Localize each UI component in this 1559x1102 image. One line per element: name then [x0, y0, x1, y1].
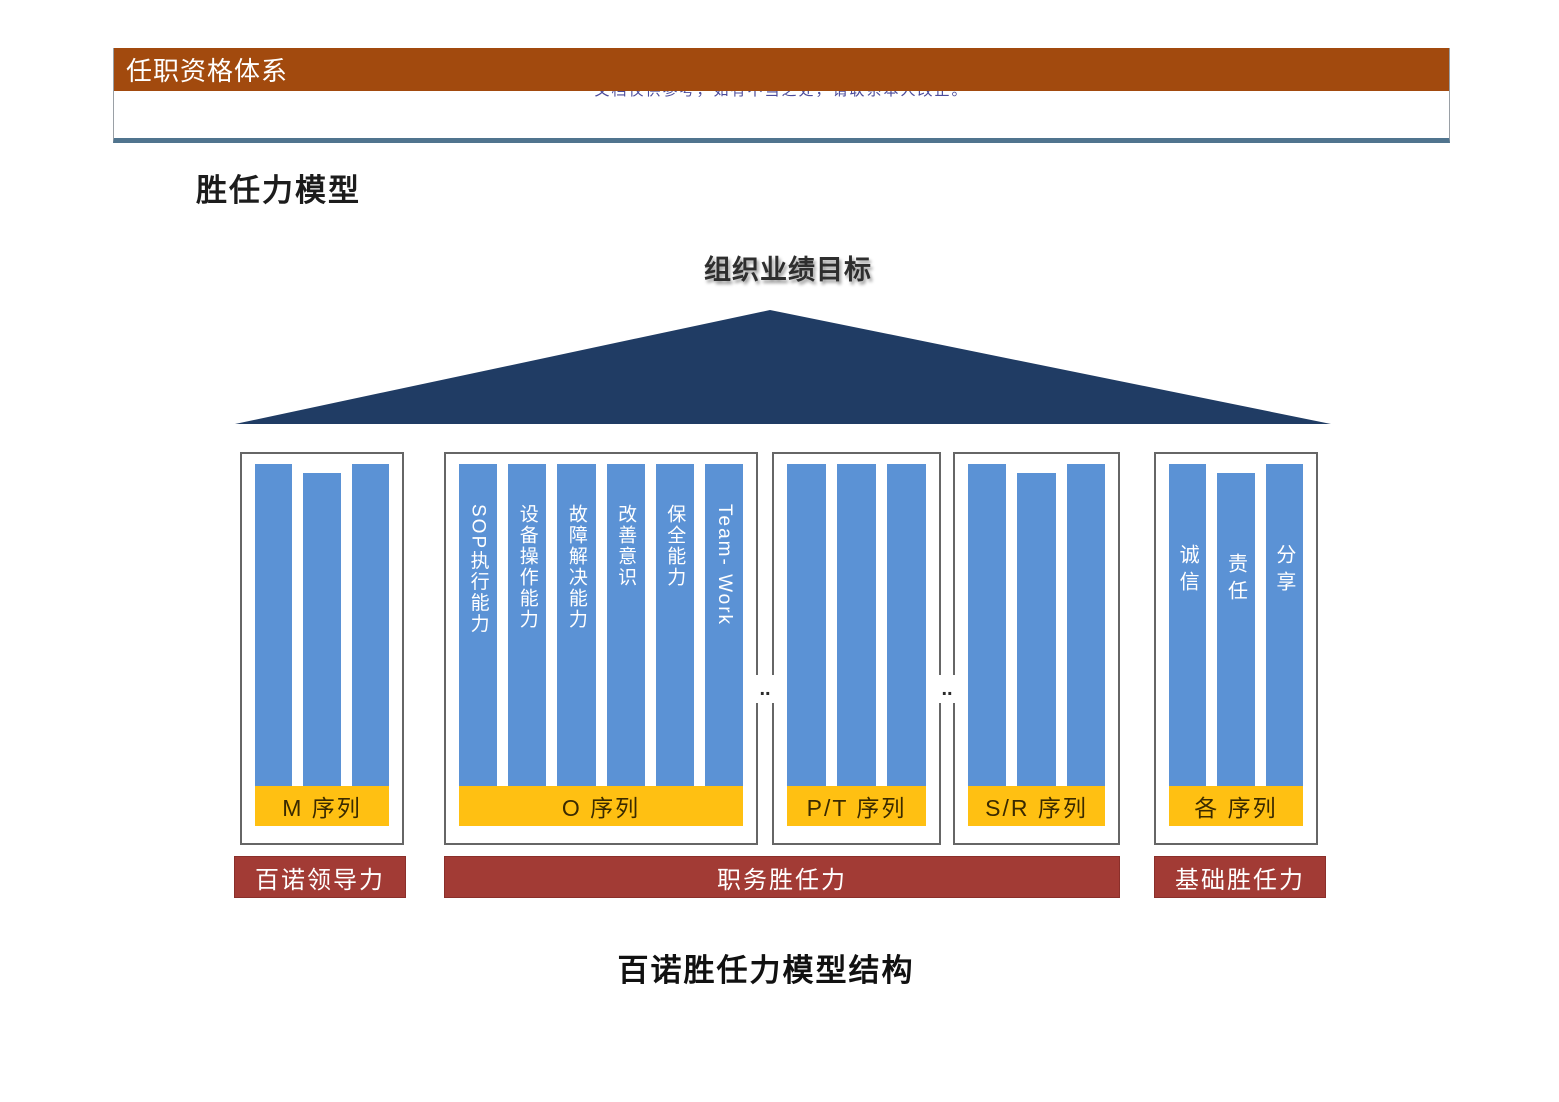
pillar-column — [787, 464, 826, 786]
column-label: Team- Work — [713, 464, 735, 786]
pillar-columns — [255, 464, 389, 786]
series-banner-m: M 序列 — [255, 786, 389, 826]
pillar-column — [968, 464, 1006, 786]
document-header: 任职资格体系 文档仅供参考，如有不当之处，请联系本人改正。 — [113, 48, 1450, 143]
series-banner-o: O 序列 — [459, 786, 743, 826]
pillar-column: 保全能力 — [656, 464, 694, 786]
pillar-column: 改善意识 — [607, 464, 645, 786]
pillar-column — [837, 464, 876, 786]
roof-triangle — [233, 306, 1333, 426]
pillar-column: 设备操作能力 — [508, 464, 546, 786]
column-label: 保全能力 — [661, 464, 688, 786]
pillar-columns: SOP执行能力设备操作能力故障解决能力改善意识保全能力Team- Work — [459, 464, 743, 786]
pillar-group-s-r: S/R 序列 — [953, 452, 1120, 845]
pillar-columns — [787, 464, 926, 786]
pillar-columns — [968, 464, 1105, 786]
pillar-column: 分享 — [1266, 464, 1303, 786]
pillar-columns: 诚信责任分享 — [1169, 464, 1303, 786]
pillar-column: 责任 — [1217, 473, 1254, 786]
pillar-group-m: M 序列 — [240, 452, 404, 845]
document-page: 任职资格体系 文档仅供参考，如有不当之处，请联系本人改正。 胜任力模型 组织业绩… — [0, 0, 1559, 1102]
pillar-column: Team- Work — [705, 464, 743, 786]
pillar-column — [887, 464, 926, 786]
competency-banner-leadership: 百诺领导力 — [234, 856, 406, 898]
competency-banner-basic: 基础胜任力 — [1154, 856, 1326, 898]
column-label: 设备操作能力 — [514, 464, 541, 786]
column-label: 责任 — [1221, 473, 1250, 786]
column-label: 改善意识 — [612, 464, 639, 786]
column-label: 分享 — [1270, 464, 1299, 786]
header-bar: 任职资格体系 — [114, 48, 1449, 91]
pillar-column — [1017, 473, 1055, 786]
pillar-column — [255, 464, 292, 786]
ellipsis-dots: .. — [751, 675, 779, 703]
pillar-column — [303, 473, 340, 786]
pillar-column: 诚信 — [1169, 464, 1206, 786]
column-label: 故障解决能力 — [563, 464, 590, 786]
pillar-column: 故障解决能力 — [557, 464, 595, 786]
pillar-column: SOP执行能力 — [459, 464, 497, 786]
column-label: SOP执行能力 — [465, 464, 492, 786]
pillar-group-o: SOP执行能力设备操作能力故障解决能力改善意识保全能力Team- WorkO 序… — [444, 452, 758, 845]
pillar-group-all: 诚信责任分享各 序列 — [1154, 452, 1318, 845]
pillar-column — [352, 464, 389, 786]
competency-banner-job: 职务胜任力 — [444, 856, 1120, 898]
goal-label: 组织业绩目标 — [538, 248, 1038, 287]
section-title: 胜任力模型 — [196, 165, 361, 210]
column-label: 诚信 — [1173, 464, 1202, 786]
series-banner-p-t: P/T 序列 — [787, 786, 926, 826]
pillar-column — [1067, 464, 1105, 786]
ellipsis-dots: .. — [933, 675, 961, 703]
header-title: 任职资格体系 — [126, 51, 288, 88]
diagram-caption: 百诺胜任力模型结构 — [416, 945, 1116, 990]
pillar-group-p-t: P/T 序列 — [772, 452, 941, 845]
series-banner-s-r: S/R 序列 — [968, 786, 1105, 826]
series-banner-all: 各 序列 — [1169, 786, 1303, 826]
